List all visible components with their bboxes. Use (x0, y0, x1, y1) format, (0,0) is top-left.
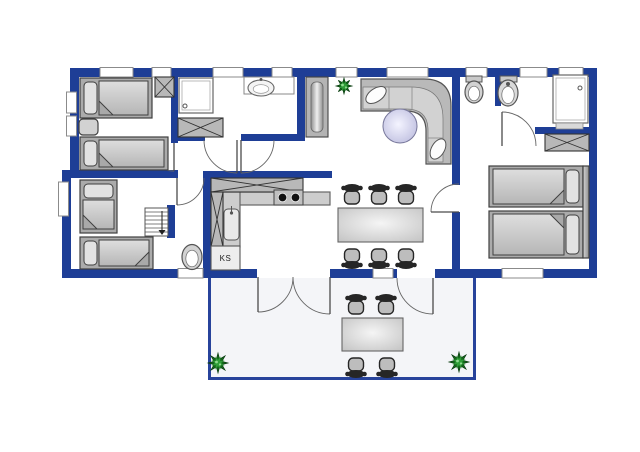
window-top-8 (520, 68, 547, 78)
round-coffee-table (383, 109, 417, 143)
fridge: KS (211, 246, 240, 270)
window-top-1 (100, 68, 133, 78)
dining-chair-6 (395, 249, 417, 269)
bedroom3-bed-lower-mattress (493, 214, 564, 255)
bedroom2-bed-vertical-pillow (84, 184, 113, 198)
living-room-plant (336, 78, 352, 94)
bathroom1-hall-wall-right (241, 134, 305, 141)
dining-chair-3-back-right (412, 186, 417, 191)
terrace-chair-2-seat (379, 301, 394, 314)
bathroom2-basin-faucet (506, 82, 510, 86)
floor-plan-svg: KS (0, 0, 640, 452)
bathroom1-basin-inner (253, 85, 269, 94)
bedroom2-bed-horizontal (80, 237, 153, 269)
bedroom3-bed-lower-pillow (566, 215, 579, 254)
bathroom1-wardrobe (178, 118, 223, 137)
terrace-chair-2-back (378, 294, 395, 302)
terrace-wall-2 (473, 278, 476, 380)
dining-chair-2-back (371, 184, 388, 192)
dining-chair-4-back-right (358, 263, 363, 268)
terrace-wall-3 (208, 377, 476, 380)
window-top-5 (336, 68, 357, 78)
kitchen-side-cabinet (211, 192, 223, 247)
dining-chair-3-back-left (395, 186, 400, 191)
terrace-chair-3-back-left (345, 372, 350, 377)
stove-burner-2 (291, 193, 300, 202)
bathroom1-living-wall (297, 68, 305, 141)
terrace-chair-1 (345, 294, 367, 314)
bedroom1-bed-lower-pillow (84, 141, 97, 166)
terrace-chair-4 (376, 358, 398, 378)
bedroom3-bed-upper (489, 166, 583, 207)
bedroom1-bed-lower (80, 137, 168, 170)
window-top-6 (387, 68, 428, 78)
window-top-2 (152, 68, 171, 78)
terrace-plant-right-highlight-2 (460, 362, 462, 364)
window-left-1 (67, 92, 77, 113)
terrace-chair-4-seat (380, 358, 395, 371)
living-room-plant-highlight-1 (341, 84, 344, 87)
dining-chair-6-back-right (412, 263, 417, 268)
terrace-plant-left-highlight-2 (219, 363, 221, 365)
wc-toilet (182, 245, 202, 270)
dining-chair-3 (395, 184, 417, 204)
bedroom3-bed-lower (489, 211, 583, 258)
tall-cabinet-front (311, 82, 323, 132)
dining-chair-5-back (371, 261, 388, 269)
bathroom2-shower (553, 75, 588, 129)
bedroom1-bed-upper-pillow (84, 82, 97, 114)
living-bathroom2-wall (452, 68, 460, 185)
window-left-2 (67, 116, 77, 136)
bedroom1-bedroom2-wall (62, 170, 178, 178)
terrace-chair-3 (345, 358, 367, 378)
bedroom2-bed-horizontal-pillow (84, 241, 97, 265)
bedroom1-bed-upper (80, 78, 152, 118)
terrace-chair-1-back-left (345, 296, 350, 301)
bathroom2-shower-mat (556, 123, 583, 129)
terrace-chair-1-back-right (362, 296, 367, 301)
dining-chair-2-seat (372, 191, 387, 204)
fridge-label: KS (220, 254, 232, 263)
living-room-plant-highlight-2 (345, 86, 347, 88)
kitchen-sink (224, 206, 239, 240)
corridor-kitchen-wall (203, 171, 211, 278)
dining-chair-4-back (344, 261, 361, 269)
terrace-plant-left (208, 353, 228, 373)
stove-burner-1 (278, 193, 287, 202)
floor-plan-page: KS (0, 0, 640, 452)
dining-chair-4-seat (345, 249, 360, 262)
wc-toilet-seat (186, 250, 198, 267)
tall-cabinet (306, 77, 328, 137)
dining-chair-5-back-right (385, 263, 390, 268)
dining-chair-1-back (344, 184, 361, 192)
dining-chair-1-back-left (341, 186, 346, 191)
terrace-chair-3-back (348, 370, 365, 378)
terrace-table (342, 318, 403, 351)
terrace-chair-1-back (348, 294, 365, 302)
dining-chair-2 (368, 184, 390, 204)
kitchen-top-wall (203, 171, 332, 178)
stairs (145, 208, 168, 236)
bathroom2-toilet-seat (468, 86, 479, 101)
bedroom2-bed-vertical (80, 180, 117, 233)
right-wall (589, 68, 597, 278)
bedroom3-bed-upper-mattress (493, 169, 564, 204)
dining-bedroom3-wall (452, 212, 460, 278)
window-top-3 (213, 68, 243, 78)
plan-layers: KS (59, 68, 598, 381)
bathroom2-toilet (465, 76, 483, 103)
terrace-plant-right-highlight-1 (456, 360, 459, 363)
dining-chair-4 (341, 249, 363, 269)
terrace-chair-4-back-left (376, 372, 381, 377)
terrace-chair-2 (375, 294, 397, 314)
terrace-chair-3-back-right (362, 372, 367, 377)
terrace-chair-2-back-left (375, 296, 380, 301)
dining-chair-2-back-right (385, 186, 390, 191)
bedroom1-nightstand (79, 119, 98, 135)
dining-chair-2-back-left (368, 186, 373, 191)
bathroom1-basin-faucet (260, 78, 263, 81)
terrace-chair-4-back-right (393, 372, 398, 377)
bedroom3-bed-upper-pillow (566, 170, 579, 203)
window-bottom-2 (373, 269, 393, 279)
terrace-plant-right (449, 352, 469, 372)
window-bottom-3 (502, 269, 543, 279)
bedroom3-wardrobe (545, 134, 589, 151)
dining-chair-1 (341, 184, 363, 204)
window-top-4 (272, 68, 292, 78)
dining-table (338, 208, 423, 242)
terrace-chair-4-back (379, 370, 396, 378)
terrace-chair-2-back-right (392, 296, 397, 301)
dining-chair-1-back-right (358, 186, 363, 191)
dining-chair-1-seat (345, 191, 360, 204)
dining-chair-5 (368, 249, 390, 269)
dining-chair-5-seat (372, 249, 387, 262)
bedroom3-headboard (583, 166, 589, 258)
bathroom1-shower (179, 78, 213, 113)
terrace-plant-left-highlight-1 (215, 361, 218, 364)
dining-chair-6-seat (399, 249, 414, 262)
dining-chair-3-seat (399, 191, 414, 204)
dining-chair-6-back-left (395, 263, 400, 268)
terrace-wall-1 (208, 278, 211, 380)
bathroom2-basin-inner (502, 86, 514, 103)
terrace-chair-3-seat (349, 358, 364, 371)
window-left-3 (59, 182, 69, 216)
terrace-chair-1-seat (349, 301, 364, 314)
bathroom2-shower-tray (553, 75, 588, 123)
bathroom2-basin (498, 76, 518, 106)
top-wall (70, 68, 597, 77)
dining-chair-3-back (398, 184, 415, 192)
dining-chair-6-back (398, 261, 415, 269)
dining-chair-5-back-left (368, 263, 373, 268)
bathroom1-vanity (244, 77, 294, 96)
stove (274, 190, 303, 205)
bedroom1-wardrobe (155, 77, 174, 97)
dining-chair-4-back-left (341, 263, 346, 268)
